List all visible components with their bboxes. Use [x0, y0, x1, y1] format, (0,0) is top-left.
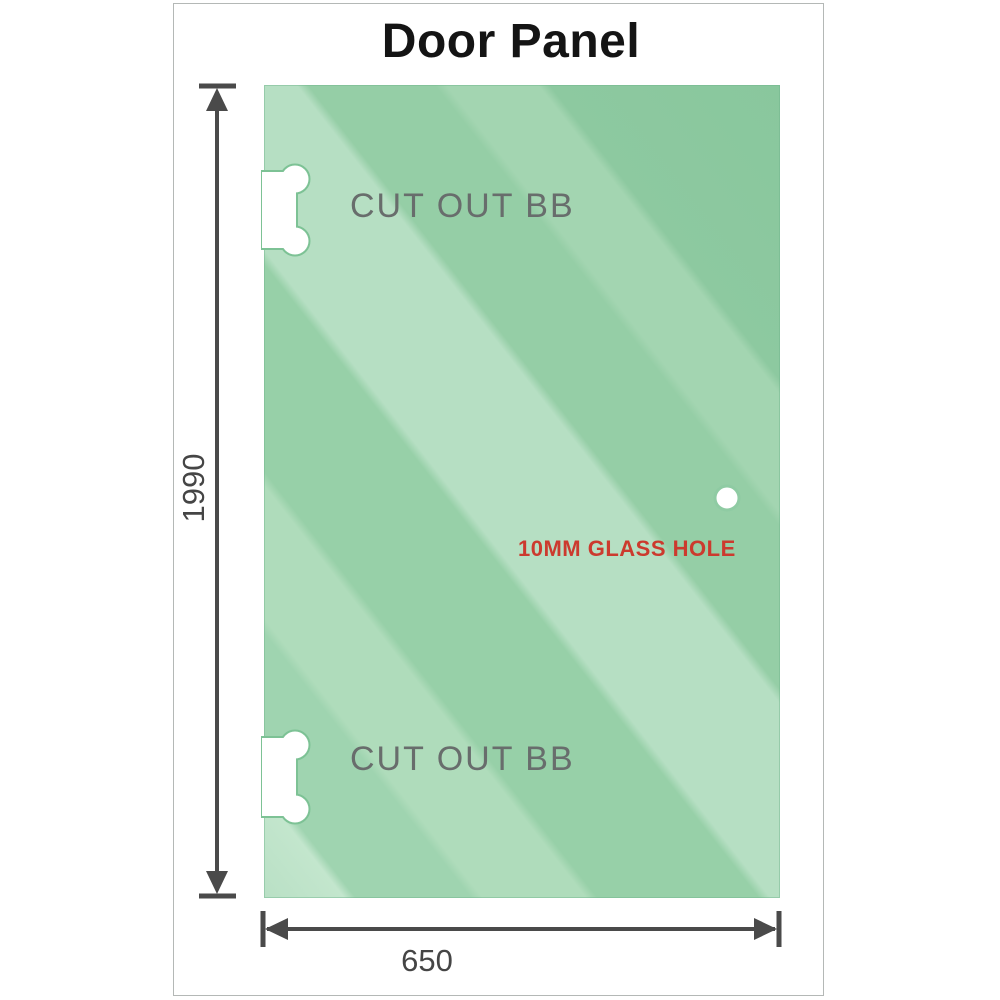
cutout-top-label: CUT OUT BB: [350, 189, 575, 223]
glass-hole-label: 10MM GLASS HOLE: [518, 537, 736, 561]
height-dimension-label: 1990: [176, 446, 212, 531]
diagram-canvas: Door Panel: [0, 0, 1000, 1000]
width-dimension-label: 650: [393, 943, 461, 979]
cutout-bottom-label: CUT OUT BB: [350, 742, 575, 776]
page-title: Door Panel: [382, 16, 640, 68]
